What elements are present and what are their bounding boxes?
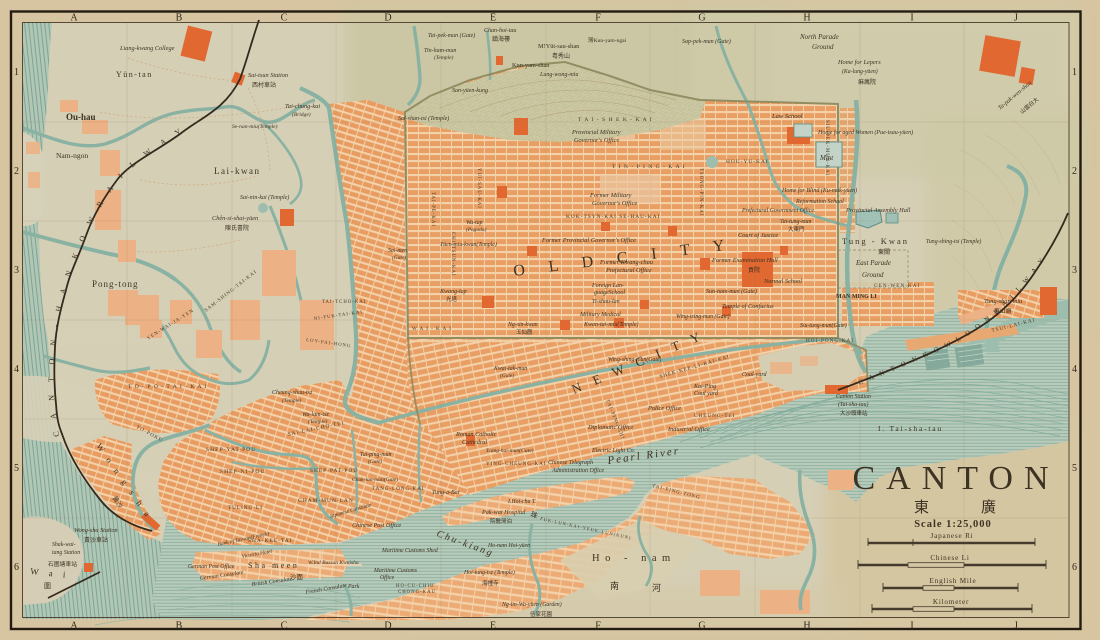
svg-text:3: 3 xyxy=(1072,265,1077,276)
svg-text:B: B xyxy=(176,13,183,24)
svg-text:2: 2 xyxy=(1072,166,1077,177)
svg-text:J: J xyxy=(1014,13,1018,24)
svg-text:3: 3 xyxy=(14,265,19,276)
svg-text:A: A xyxy=(70,621,78,632)
svg-text:D: D xyxy=(384,621,391,632)
svg-text:6: 6 xyxy=(1072,562,1077,573)
svg-text:F: F xyxy=(595,13,601,24)
svg-text:D: D xyxy=(384,13,391,24)
svg-text:5: 5 xyxy=(14,463,19,474)
svg-text:C: C xyxy=(281,13,288,24)
svg-text:4: 4 xyxy=(14,364,19,375)
svg-text:E: E xyxy=(490,13,496,24)
svg-text:F: F xyxy=(595,621,601,632)
svg-text:1: 1 xyxy=(1072,67,1077,78)
svg-text:G: G xyxy=(698,621,705,632)
svg-text:5: 5 xyxy=(1072,463,1077,474)
svg-text:H: H xyxy=(803,621,810,632)
svg-text:1: 1 xyxy=(14,67,19,78)
svg-text:2: 2 xyxy=(14,166,19,177)
svg-text:J: J xyxy=(1014,621,1018,632)
svg-text:E: E xyxy=(490,621,496,632)
svg-text:C: C xyxy=(281,621,288,632)
svg-text:6: 6 xyxy=(14,562,19,573)
svg-text:G: G xyxy=(698,13,705,24)
svg-text:I: I xyxy=(910,621,913,632)
svg-text:I: I xyxy=(910,13,913,24)
svg-text:4: 4 xyxy=(1072,364,1077,375)
svg-text:B: B xyxy=(176,621,183,632)
svg-text:A: A xyxy=(70,13,78,24)
svg-text:H: H xyxy=(803,13,810,24)
